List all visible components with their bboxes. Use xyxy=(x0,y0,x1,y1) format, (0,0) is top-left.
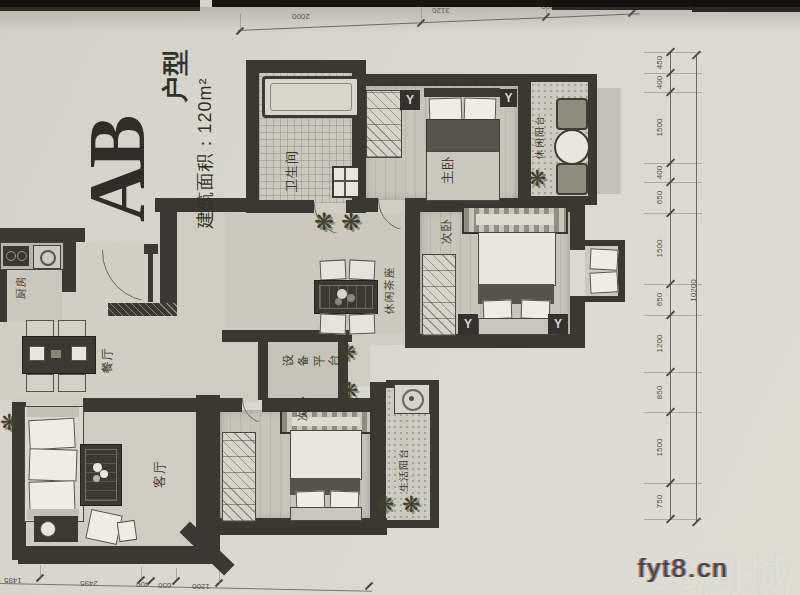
dim-label: 1200 xyxy=(650,335,670,353)
bedroom-bottom-wardrobe xyxy=(222,432,256,522)
dim-ext-line xyxy=(644,92,702,93)
floor-corridor2 xyxy=(222,342,258,402)
master-door-arc xyxy=(378,199,408,229)
dim-label: 750 xyxy=(650,492,670,510)
dining-chair xyxy=(26,320,54,337)
dim-ext-line xyxy=(644,315,702,316)
tea-table xyxy=(314,280,378,314)
dim-label: 650 xyxy=(650,189,670,207)
master-wardrobe xyxy=(366,90,402,158)
balcony-table xyxy=(554,129,590,165)
tea-chair xyxy=(348,259,375,280)
ac-unit-icon: Y xyxy=(500,89,517,107)
dim-label: 400 xyxy=(650,74,670,92)
label-equipment-platform: 设备平台 xyxy=(282,348,340,372)
dining-table xyxy=(22,336,96,374)
label-living: 客厅 xyxy=(150,452,170,496)
wash-basin xyxy=(332,166,360,198)
balcony-chair xyxy=(556,163,588,195)
label-bathroom: 卫生间 xyxy=(280,140,304,202)
dining-chair xyxy=(58,320,86,337)
coffee-table xyxy=(80,444,122,506)
balcony-chair xyxy=(556,98,588,130)
floor-balcony-step xyxy=(597,88,621,194)
plant-icon: ❋ xyxy=(376,494,394,516)
dim-label: 1500 xyxy=(650,119,670,137)
bay-window-cushion xyxy=(589,271,618,293)
plant-icon: ❋ xyxy=(0,412,18,434)
bathtub xyxy=(262,76,360,118)
label-tea-area: 休闲茶座 xyxy=(380,258,398,322)
dining-chair xyxy=(26,374,54,392)
dim-label: 1495 xyxy=(0,574,26,586)
plant-icon: ❋ xyxy=(340,380,358,402)
dim-label: 850 xyxy=(650,383,670,401)
label-bedroom-bottom: 次卧 xyxy=(293,390,311,426)
entry-door-arc xyxy=(102,250,152,300)
dim-ext-line xyxy=(644,372,702,373)
dim-ext-line xyxy=(219,570,220,583)
dim-label: 650 xyxy=(152,579,178,591)
dim-label: 400 xyxy=(650,164,670,182)
washing-machine xyxy=(394,384,430,414)
kitchen-sink xyxy=(33,245,61,269)
dining-chair xyxy=(58,374,86,392)
plant-icon: ❋ xyxy=(314,210,334,234)
dim-ext-line xyxy=(644,213,702,214)
dim-ext-line xyxy=(644,182,702,183)
watermark-site-url: fyt8.cn xyxy=(638,553,729,584)
ac-unit-icon: Y xyxy=(548,314,568,334)
ac-unit-icon: Y xyxy=(458,314,478,334)
dim-line xyxy=(0,583,372,592)
label-life-balcony: 生活阳台 xyxy=(396,438,412,502)
dim-label: 1500 xyxy=(650,439,670,457)
bay-window-cushion xyxy=(589,248,618,270)
tea-chair xyxy=(349,314,376,335)
plan-title: AB xyxy=(68,85,168,255)
dim-tick xyxy=(365,582,373,590)
dim-label: 650 xyxy=(650,291,670,309)
dim-label: 1500 xyxy=(650,240,670,258)
tea-chair xyxy=(319,259,346,280)
kitchen-counter xyxy=(0,242,64,270)
floorplan-photo: Y Y Y Y xyxy=(0,0,800,595)
side-chair xyxy=(117,520,138,542)
tv-cabinet xyxy=(34,516,78,542)
plant-icon: ❋ xyxy=(528,168,546,190)
label-dining: 餐厅 xyxy=(98,340,116,380)
plant-icon: ❋ xyxy=(341,210,361,234)
entry-door-leaf xyxy=(148,250,153,302)
ac-unit-icon: Y xyxy=(400,90,420,110)
dim-label: 1200 xyxy=(188,580,214,592)
tea-chair xyxy=(320,314,347,335)
dim-ext-line xyxy=(40,565,41,578)
label-leisure-balcony: 休闲阳台 xyxy=(532,104,548,170)
label-master-bedroom: 主卧 xyxy=(437,148,459,192)
bedroom-door-arc xyxy=(242,398,266,422)
bedroom-right-wardrobe xyxy=(422,254,456,336)
dim-label: 450 xyxy=(650,54,670,72)
dim-ext-line xyxy=(644,483,702,484)
label-bedroom-right: 次卧 xyxy=(437,212,455,250)
label-kitchen: 厨房 xyxy=(12,270,30,304)
sofa xyxy=(24,406,84,522)
bed-headboard-decor xyxy=(462,206,568,234)
dim-total-label: 10200 xyxy=(684,272,702,308)
dim-label: 2495 xyxy=(76,577,102,589)
dim-ext-line xyxy=(644,412,702,413)
dim-ext-line xyxy=(644,519,702,520)
floor-corridor xyxy=(160,316,222,402)
plan-area: 建筑面积：120m² xyxy=(185,55,225,250)
